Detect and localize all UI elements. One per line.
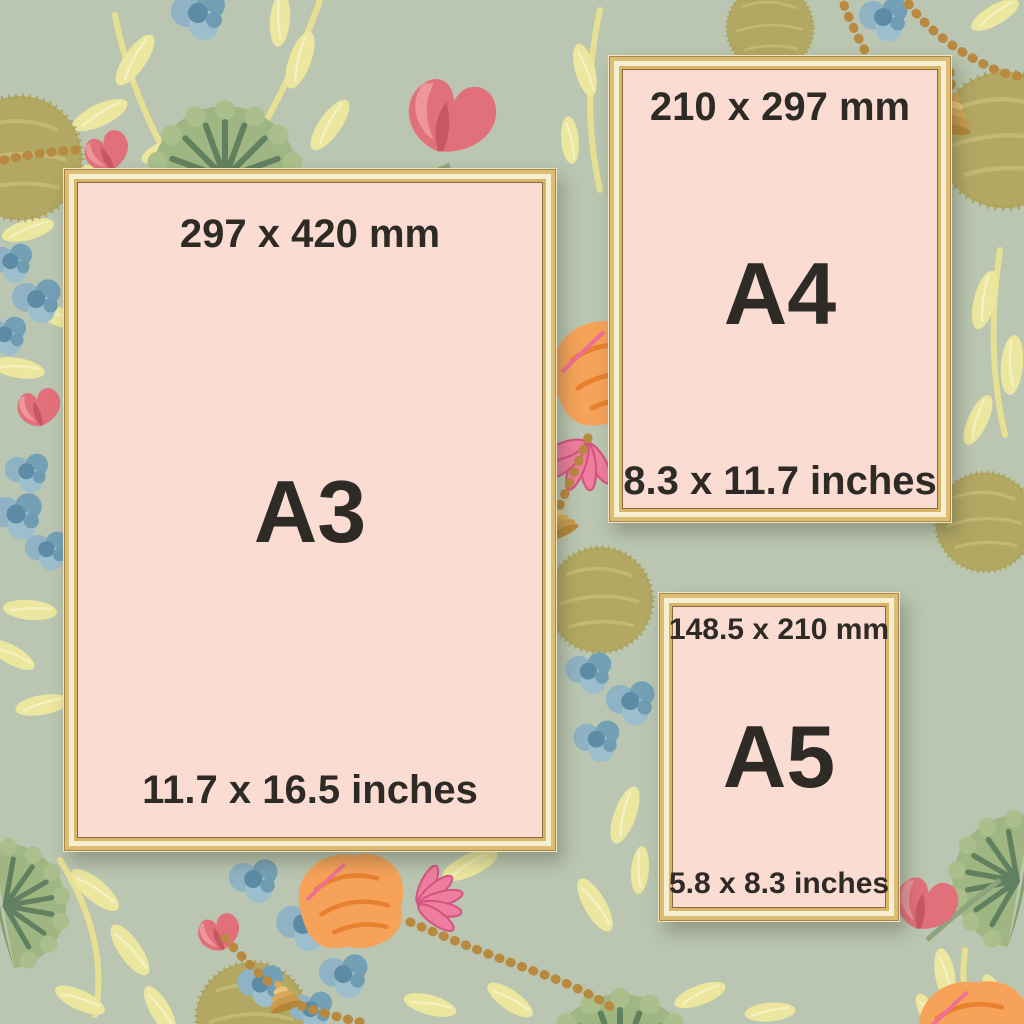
a3-size-label: A3 (254, 468, 367, 556)
a4-dimensions-mm: 210 x 297 mm (650, 84, 910, 130)
size-guide-image: 297 x 420 mm A3 11.7 x 16.5 inches 210 x… (0, 0, 1024, 1024)
frame-a3: 297 x 420 mm A3 11.7 x 16.5 inches (63, 168, 557, 852)
frame-a4: 210 x 297 mm A4 8.3 x 11.7 inches (608, 55, 952, 523)
frame-a3-mat: 297 x 420 mm A3 11.7 x 16.5 inches (78, 183, 542, 837)
a5-size-label: A5 (723, 713, 836, 801)
a3-dimensions-inches: 11.7 x 16.5 inches (142, 767, 478, 813)
a3-dimensions-mm: 297 x 420 mm (180, 211, 440, 257)
a5-dimensions-mm: 148.5 x 210 mm (669, 613, 889, 648)
a4-dimensions-inches: 8.3 x 11.7 inches (623, 458, 937, 504)
a5-dimensions-inches: 5.8 x 8.3 inches (669, 867, 889, 902)
a4-size-label: A4 (724, 250, 837, 338)
frame-a4-mat: 210 x 297 mm A4 8.3 x 11.7 inches (623, 70, 937, 508)
frame-a5-mat: 148.5 x 210 mm A5 5.8 x 8.3 inches (673, 607, 885, 907)
frame-a5: 148.5 x 210 mm A5 5.8 x 8.3 inches (658, 592, 900, 922)
